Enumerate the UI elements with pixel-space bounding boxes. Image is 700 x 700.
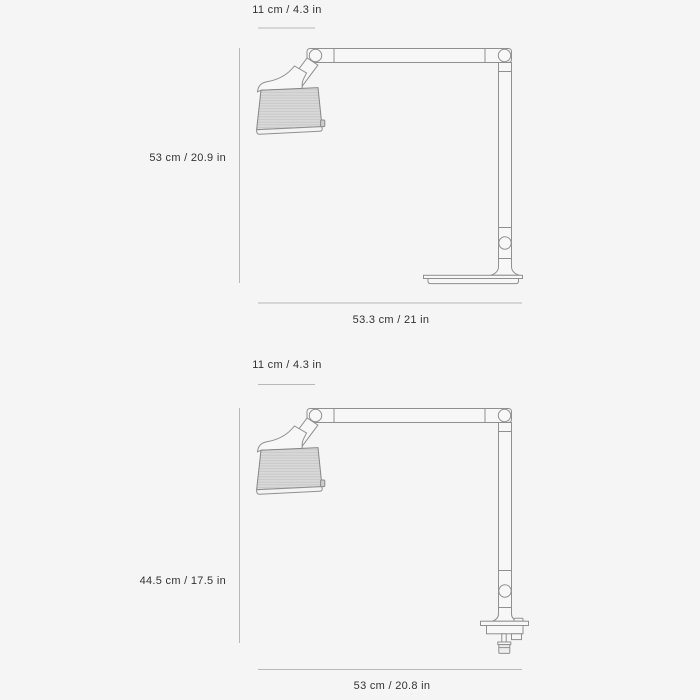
pole-joint [499, 237, 511, 249]
figure2-depth-label: 53 cm / 20.8 in [354, 680, 431, 693]
dimension-diagram-canvas: 11 cm / 4.3 in 53 cm / 20.9 in 53.3 cm /… [0, 0, 700, 700]
figure1-height-label: 53 cm / 20.9 in [149, 152, 226, 165]
base-disc [428, 279, 519, 284]
clamp-bracket [487, 626, 524, 634]
clamp-knob [499, 645, 510, 654]
lamp-pole [499, 423, 512, 613]
dimension-lines-figure2 [240, 385, 523, 670]
clamp-side-tab [512, 634, 522, 640]
lamp-technical-drawing [0, 0, 700, 700]
figure-freestanding-lamp [240, 28, 523, 303]
figure2-head-width-label: 11 cm / 4.3 in [252, 359, 321, 372]
figure1-depth-label: 53.3 cm / 21 in [353, 314, 430, 327]
pole-joint [499, 585, 511, 597]
figure2-height-label: 44.5 cm / 17.5 in [140, 575, 226, 588]
dimension-lines-figure1 [240, 28, 523, 303]
clamp-screw-shaft [502, 634, 506, 642]
figure-clamp-lamp [240, 385, 529, 670]
figure1-head-width-label: 11 cm / 4.3 in [252, 4, 321, 17]
pole-foot-flare [491, 262, 520, 275]
lamp-pole [499, 63, 512, 264]
clamp-top-plate [481, 621, 529, 625]
